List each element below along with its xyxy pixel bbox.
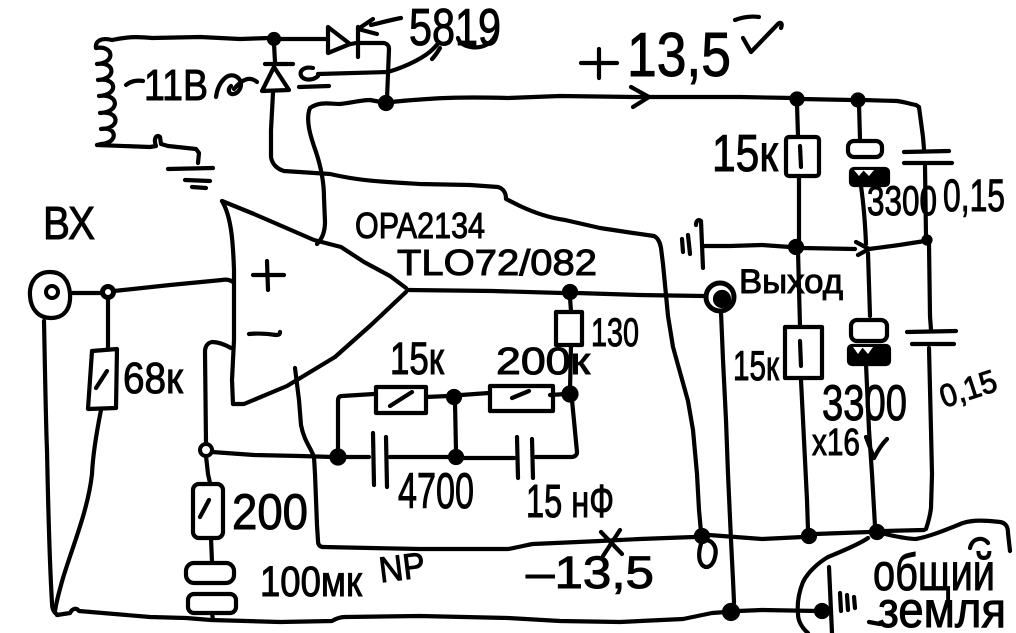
svg-text:15к: 15к	[390, 333, 444, 384]
svg-text:100мк: 100мк	[260, 558, 363, 606]
svg-text:0,15: 0,15	[935, 362, 1001, 414]
svg-text:OPA2134: OPA2134	[355, 205, 485, 246]
svg-text:ВХ: ВХ	[43, 197, 95, 249]
svg-text:0,15: 0,15	[943, 170, 1005, 221]
svg-text:15к: 15к	[733, 342, 779, 389]
svg-text:200к: 200к	[496, 341, 590, 383]
svg-text:х16: х16	[812, 422, 860, 464]
svg-text:–13,5: –13,5	[526, 547, 654, 598]
svg-text:земля: земля	[878, 582, 1006, 633]
svg-text:68к: 68к	[123, 354, 184, 403]
svg-text:13,5: 13,5	[627, 21, 731, 90]
svg-text:5819: 5819	[409, 0, 501, 57]
svg-text:15 нФ: 15 нФ	[526, 475, 614, 527]
svg-text:200: 200	[232, 484, 308, 540]
svg-text:Выход: Выход	[739, 263, 843, 301]
svg-text:NP: NP	[377, 544, 428, 590]
svg-text:130: 130	[591, 311, 639, 355]
svg-text:15к: 15к	[712, 125, 778, 183]
svg-text:4700: 4700	[398, 463, 474, 519]
svg-text:3300: 3300	[867, 177, 937, 224]
svg-text:ТLО72/082: ТLО72/082	[397, 242, 597, 283]
svg-text:11В: 11В	[144, 61, 208, 110]
